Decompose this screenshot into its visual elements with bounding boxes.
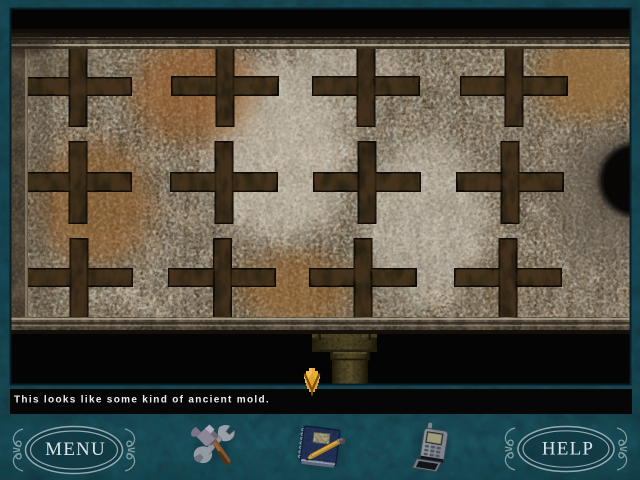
svg-text:HELP: HELP — [542, 439, 594, 460]
svg-text:This looks like some kind of a: This looks like some kind of ancient mol… — [14, 395, 270, 406]
svg-text:MENU: MENU — [45, 439, 106, 460]
